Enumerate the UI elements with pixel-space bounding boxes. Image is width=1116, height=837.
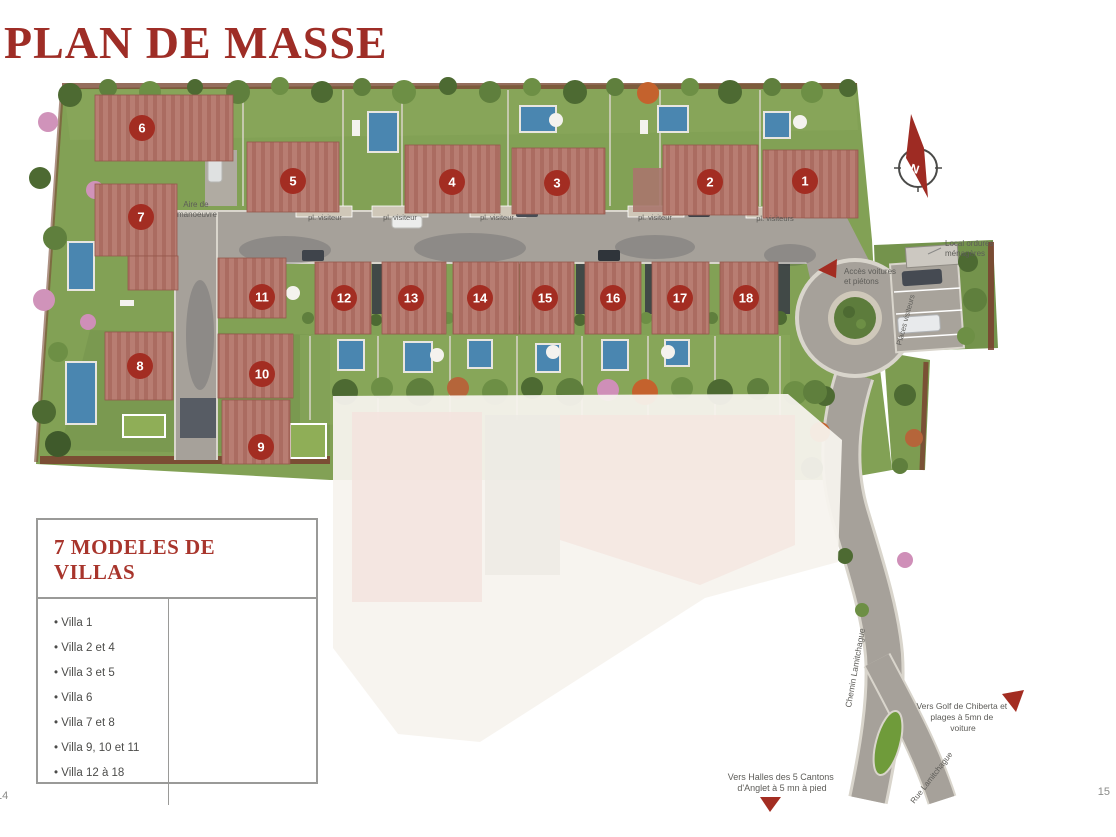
label-line: et piétons xyxy=(844,277,879,286)
label-pl-visiteur-3: pl. visiteur xyxy=(480,213,514,222)
label-line: Aire de xyxy=(183,200,209,209)
faded-neighbour-property xyxy=(333,394,842,742)
villa-badge-14: 14 xyxy=(467,285,493,311)
label-pl-visiteurs: pl. visiteurs xyxy=(756,214,794,223)
villa-roof-6 xyxy=(95,95,233,161)
legend-box: 7 MODELES DE VILLAS Villa 1 Villa 2 et 4… xyxy=(36,518,318,784)
villa-badge-9: 9 xyxy=(248,434,274,460)
villa-badge-3: 3 xyxy=(544,170,570,196)
label-line: ménagères xyxy=(945,249,985,258)
villa-badge-2: 2 xyxy=(697,169,723,195)
label-pl-visiteur-4: pl. visiteur xyxy=(638,213,672,222)
legend-title: 7 MODELES DE VILLAS xyxy=(38,520,316,599)
villa-number: 18 xyxy=(739,291,753,306)
legend-item: Villa 7 et 8 xyxy=(54,711,158,736)
villa-badge-17: 17 xyxy=(667,285,693,311)
halles-triangle-icon xyxy=(760,797,781,812)
brochure-page: PLAN DE MASSE xyxy=(0,0,1116,837)
villa-number: 1 xyxy=(801,174,808,189)
garage-building xyxy=(180,398,216,438)
label-line: plages à 5mn de xyxy=(930,712,993,722)
legend-item: Villa 3 et 5 xyxy=(54,661,158,686)
villa-badge-7: 7 xyxy=(128,204,154,230)
villa-badge-11: 11 xyxy=(249,284,275,310)
villa-number: 4 xyxy=(448,175,456,190)
villa-number: 16 xyxy=(606,291,620,306)
villa-badge-5: 5 xyxy=(280,168,306,194)
villa-badge-16: 16 xyxy=(600,285,626,311)
villa-number: 14 xyxy=(473,291,488,306)
villa-number: 8 xyxy=(136,359,143,374)
label-pl-visiteur-1: pl. visiteur xyxy=(308,213,342,222)
villa-badge-1: 1 xyxy=(792,168,818,194)
villa-number: 5 xyxy=(289,174,296,189)
label-line: voiture xyxy=(950,723,976,733)
villa-number: 10 xyxy=(255,367,269,382)
villa-badge-15: 15 xyxy=(532,285,558,311)
villa-number: 2 xyxy=(706,175,713,190)
villa-number: 7 xyxy=(137,210,144,225)
label-line: Local ordures xyxy=(945,239,993,248)
villa-badge-10: 10 xyxy=(249,361,275,387)
villa-number: 3 xyxy=(553,176,560,191)
label-line: d'Anglet à 5 mn à pied xyxy=(737,783,826,793)
legend-item: Villa 2 et 4 xyxy=(54,636,158,661)
legend-item: Villa 9, 10 et 11 xyxy=(54,736,158,761)
villa-number: 13 xyxy=(404,291,418,306)
villa-badge-6: 6 xyxy=(129,115,155,141)
label-halles-direction: Vers Halles des 5 Cantons d'Anglet à 5 m… xyxy=(728,772,837,793)
label-pl-visiteur-2: pl. visiteur xyxy=(383,213,417,222)
villa-badge-4: 4 xyxy=(439,169,465,195)
label-line: Vers Halles des 5 Cantons xyxy=(728,772,835,782)
villa-number: 9 xyxy=(257,440,264,455)
legend-list: Villa 1 Villa 2 et 4 Villa 3 et 5 Villa … xyxy=(38,599,169,805)
legend-item: Villa 12 à 18 xyxy=(54,761,158,786)
label-golf-direction: Vers Golf de Chiberta et plages à 5mn de… xyxy=(916,701,1009,733)
page-number-right: 15 xyxy=(1098,786,1110,798)
villa-roof-11 xyxy=(218,258,286,318)
villa-number: 17 xyxy=(673,291,687,306)
villa-number: 12 xyxy=(337,291,351,306)
villa-badge-18: 18 xyxy=(733,285,759,311)
villa-badge-13: 13 xyxy=(398,285,424,311)
north-compass-icon: N xyxy=(894,114,942,198)
label-line: Accès voitures xyxy=(844,267,896,276)
legend-item: Villa 1 xyxy=(54,611,158,636)
label-chemin-lamitchague: Chemin Lamitchague xyxy=(843,627,867,708)
villa-number: 11 xyxy=(255,290,269,305)
villa-number: 6 xyxy=(138,121,145,136)
label-line: Vers Golf de Chiberta et xyxy=(916,701,1007,711)
villa-badge-12: 12 xyxy=(331,285,357,311)
legend-item: Villa 6 xyxy=(54,686,158,711)
label-line: manoeuvre xyxy=(177,210,218,219)
villa-badge-8: 8 xyxy=(127,353,153,379)
villa-number: 15 xyxy=(538,291,552,306)
legend-spacer xyxy=(169,599,316,805)
villa-roof-7-wing xyxy=(128,256,178,290)
page-number-left: 14 xyxy=(0,790,8,802)
